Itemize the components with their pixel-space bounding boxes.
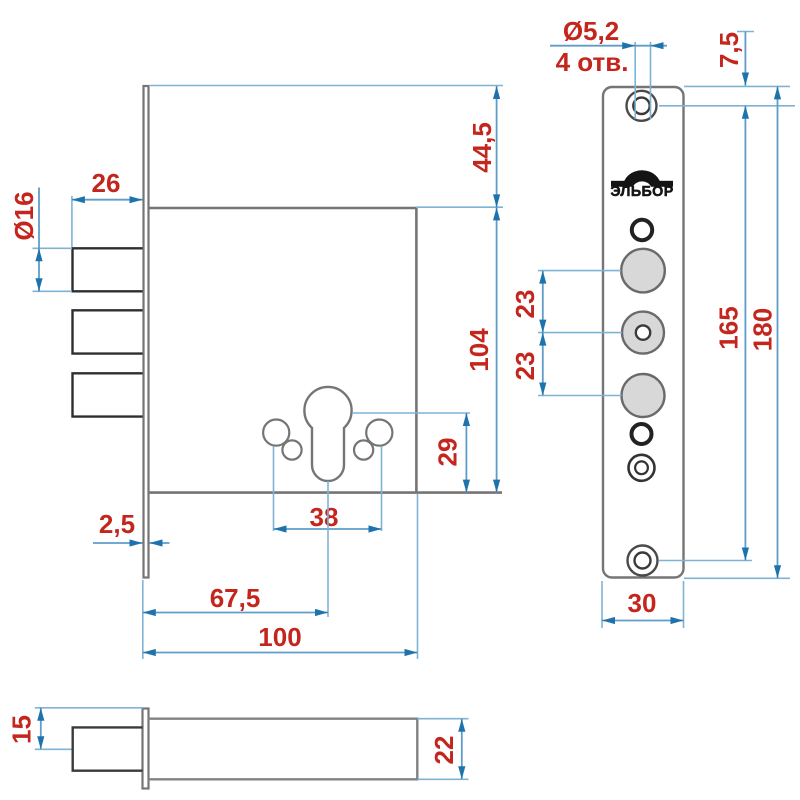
svg-text:30: 30 [628,588,657,618]
svg-text:180: 180 [748,308,778,351]
svg-text:22: 22 [429,736,459,765]
svg-text:67,5: 67,5 [210,583,261,613]
svg-text:26: 26 [92,168,121,198]
svg-text:Ø16: Ø16 [9,191,39,240]
svg-text:4 отв.: 4 отв. [556,47,629,77]
svg-text:ЭЛЬБОР: ЭЛЬБОР [610,184,673,200]
svg-text:38: 38 [310,502,339,532]
svg-text:15: 15 [7,715,37,744]
svg-text:Ø5,2: Ø5,2 [563,16,619,46]
svg-text:23: 23 [510,290,540,319]
svg-text:104: 104 [464,328,494,372]
svg-text:44,5: 44,5 [467,122,497,173]
svg-text:100: 100 [258,622,301,652]
svg-text:165: 165 [714,306,744,349]
svg-text:2,5: 2,5 [99,509,135,539]
svg-text:7,5: 7,5 [714,32,744,68]
svg-text:23: 23 [510,351,540,380]
svg-text:29: 29 [433,438,463,467]
